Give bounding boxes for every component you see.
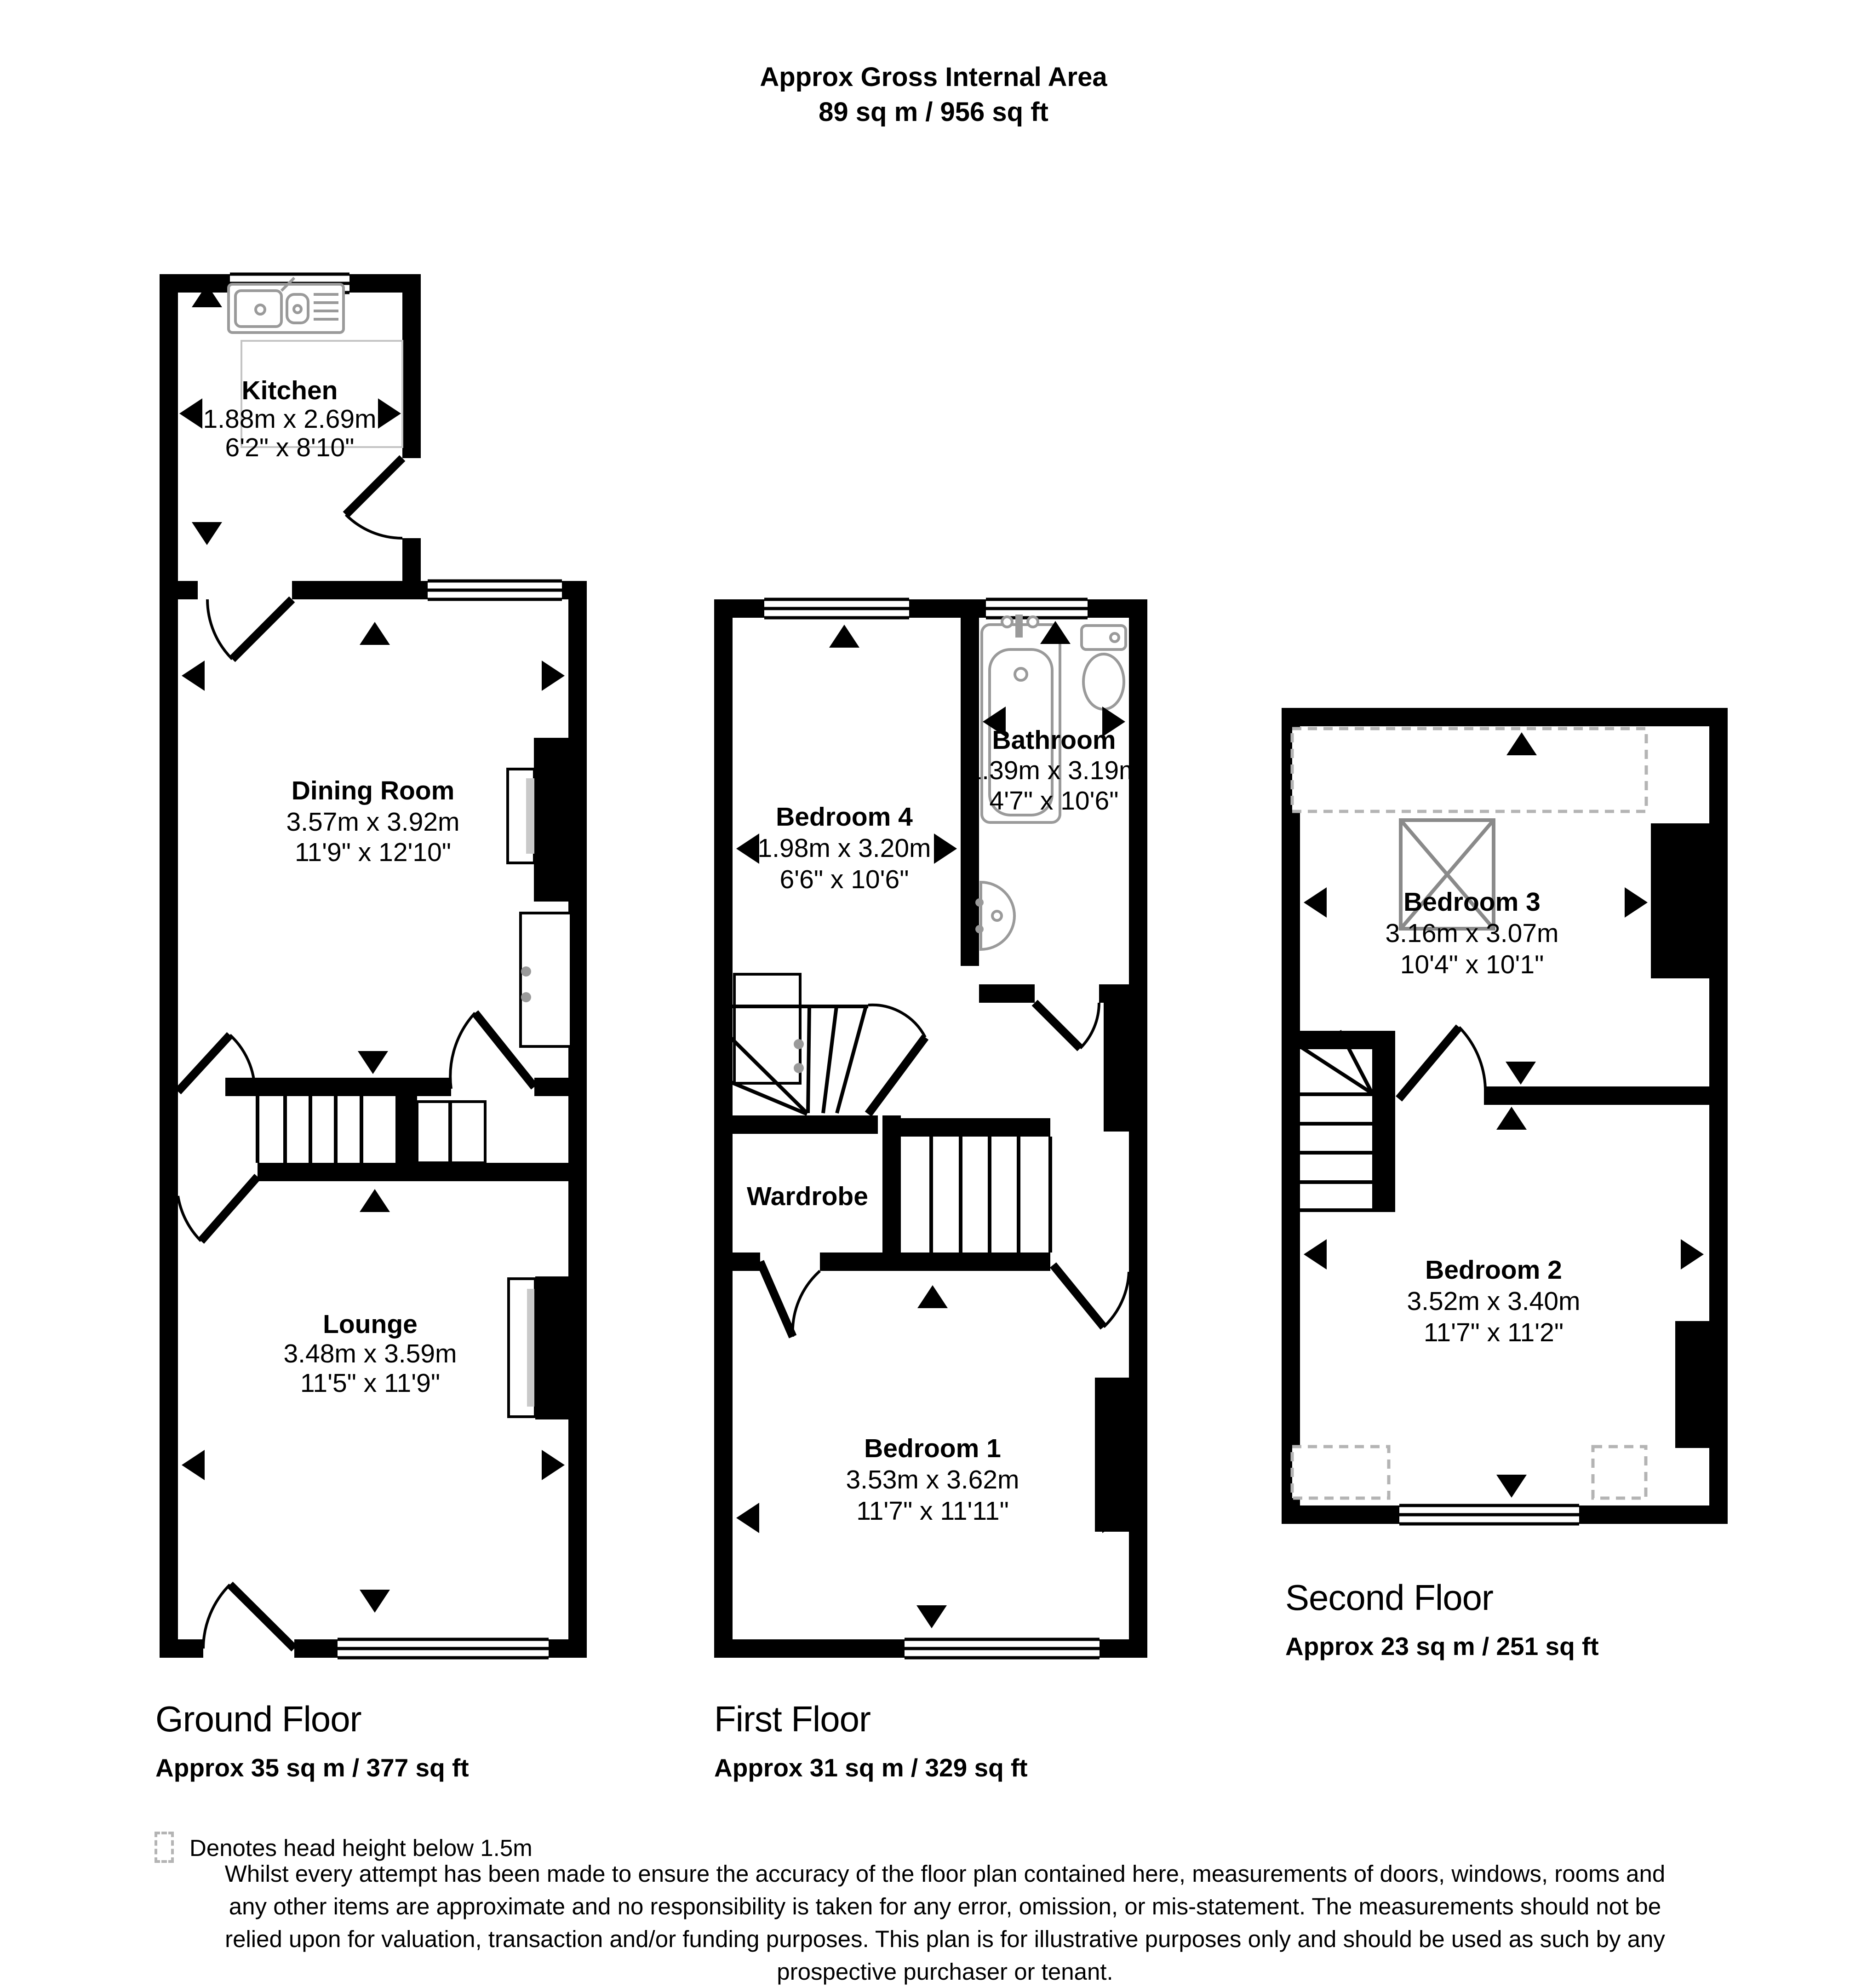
bedroom1-window bbox=[905, 1633, 1100, 1664]
bedroom2-window bbox=[1399, 1499, 1579, 1530]
bedroom4-arrow-right-icon bbox=[934, 833, 957, 864]
title-line1: Approx Gross Internal Area bbox=[0, 60, 1867, 95]
dining-arrow-down-icon bbox=[358, 1051, 388, 1074]
dining-chimney-breast bbox=[534, 738, 568, 902]
dining-name: Dining Room bbox=[292, 776, 455, 805]
lounge-arrow-right-icon bbox=[542, 1450, 565, 1480]
second-floor-name: Second Floor bbox=[1285, 1577, 1599, 1619]
head-height-zones bbox=[1292, 729, 1646, 1498]
bedroom2-arrow-left-icon bbox=[1304, 1239, 1327, 1270]
wardrobe-doors bbox=[760, 1262, 820, 1337]
bedroom1-door bbox=[1053, 1265, 1129, 1327]
disclaimer-line1: Whilst every attempt has been made to en… bbox=[23, 1857, 1867, 1890]
bedroom2-metric: 3.52m x 3.40m bbox=[1407, 1287, 1580, 1316]
ground-floor-plan: Kitchen 1.88m x 2.69m 6'2" x 8'10" Dinin… bbox=[138, 253, 625, 1702]
lounge-window bbox=[338, 1633, 549, 1664]
disclaimer-line2: any other items are approximate and no r… bbox=[23, 1890, 1867, 1923]
kitchen-label: Kitchen 1.88m x 2.69m 6'2" x 8'10" bbox=[203, 376, 376, 462]
bedroom4-arrow-left-icon bbox=[736, 833, 759, 864]
lounge-imperial: 11'5" x 11'9" bbox=[300, 1368, 440, 1398]
bedroom4-name: Bedroom 4 bbox=[776, 802, 913, 832]
bedroom4-metric: 1.98m x 3.20m bbox=[757, 833, 931, 863]
lounge-metric: 3.48m x 3.59m bbox=[283, 1339, 457, 1368]
front-door bbox=[203, 1585, 294, 1649]
lounge-label: Lounge 3.48m x 3.59m 11'5" x 11'9" bbox=[283, 1310, 457, 1398]
bedroom1-imperial: 11'7" x 11'11" bbox=[856, 1496, 1009, 1526]
toilet-icon bbox=[1082, 626, 1126, 709]
dining-window bbox=[428, 575, 562, 606]
second-floor-plan: Bedroom 3 3.16m x 3.07m 10'4" x 10'1" Be… bbox=[1260, 681, 1757, 1555]
kitchen-arrow-down-icon bbox=[192, 522, 222, 545]
head-height-zone-bottom-right bbox=[1593, 1447, 1646, 1498]
basin-icon bbox=[975, 882, 1014, 949]
dining-room-label: Dining Room 3.57m x 3.92m 11'9" x 12'10" bbox=[286, 776, 459, 867]
second-floor-label: Second Floor Approx 23 sq m / 251 sq ft bbox=[1285, 1577, 1599, 1661]
bedroom3-arrow-down-icon bbox=[1506, 1062, 1536, 1085]
bedroom4-arrow-up-icon bbox=[829, 625, 859, 648]
bedroom1-arrow-left-icon bbox=[736, 1503, 759, 1533]
kitchen-dining-door bbox=[207, 599, 292, 659]
dining-fireplace-icon bbox=[508, 769, 534, 863]
dining-imperial: 11'9" x 12'10" bbox=[295, 838, 451, 867]
second-landing-door bbox=[1399, 1027, 1485, 1099]
ground-floor-area: Approx 35 sq m / 377 sq ft bbox=[155, 1753, 469, 1782]
bedroom3-name: Bedroom 3 bbox=[1403, 887, 1541, 917]
bedroom2-label: Bedroom 2 3.52m x 3.40m 11'7" x 11'2" bbox=[1407, 1255, 1580, 1347]
bedroom1-arrow-down-icon bbox=[916, 1605, 947, 1628]
head-height-zone-bottom-left bbox=[1292, 1447, 1389, 1498]
first-floor-area: Approx 31 sq m / 329 sq ft bbox=[714, 1753, 1028, 1782]
bedroom3-arrow-left-icon bbox=[1304, 887, 1327, 918]
dining-arrow-right-icon bbox=[542, 661, 565, 691]
bedroom1-name: Bedroom 1 bbox=[864, 1434, 1001, 1463]
bathroom-label: Bathroom 1.39m x 3.19m 4'7" x 10'6" bbox=[967, 725, 1140, 816]
second-floor-walls bbox=[1282, 708, 1728, 1524]
kitchen-metric: 1.88m x 2.69m bbox=[203, 404, 376, 434]
bedroom4-imperial: 6'6" x 10'6" bbox=[780, 865, 909, 894]
bathroom-door bbox=[1035, 1003, 1099, 1048]
bedroom2-name: Bedroom 2 bbox=[1425, 1255, 1562, 1285]
wardrobe-label: Wardrobe bbox=[747, 1182, 868, 1211]
bathroom-name: Bathroom bbox=[992, 725, 1116, 755]
kitchen-name: Kitchen bbox=[241, 376, 338, 405]
first-floor-plan: Bedroom 4 1.98m x 3.20m 6'6" x 10'6" Bat… bbox=[690, 575, 1177, 1679]
second-floor-area: Approx 23 sq m / 251 sq ft bbox=[1285, 1632, 1599, 1661]
lounge-arrow-down-icon bbox=[360, 1590, 390, 1613]
disclaimer: Whilst every attempt has been made to en… bbox=[23, 1857, 1867, 1988]
bedroom2-arrow-right-icon bbox=[1681, 1239, 1704, 1270]
bathroom-metric: 1.39m x 3.19m bbox=[967, 756, 1140, 785]
bedroom2-arrow-up-icon bbox=[1496, 1107, 1527, 1130]
first-floor-name: First Floor bbox=[714, 1698, 1028, 1740]
head-height-zone-top bbox=[1292, 729, 1646, 811]
bedroom1-metric: 3.53m x 3.62m bbox=[846, 1465, 1019, 1494]
kitchen-sink-icon bbox=[229, 278, 344, 333]
kitchen-arrow-left-icon bbox=[179, 398, 202, 429]
dining-cupboard-icon bbox=[521, 913, 571, 1046]
ground-floor-label: Ground Floor Approx 35 sq m / 377 sq ft bbox=[155, 1698, 469, 1782]
ground-floor-name: Ground Floor bbox=[155, 1698, 469, 1740]
disclaimer-line3: relied upon for valuation, transaction a… bbox=[23, 1923, 1867, 1955]
title-line2: 89 sq m / 956 sq ft bbox=[0, 95, 1867, 130]
bedroom1-arrow-up-icon bbox=[917, 1285, 948, 1308]
disclaimer-line4: prospective purchaser or tenant. bbox=[23, 1955, 1867, 1988]
second-floor-stairs bbox=[1300, 1031, 1372, 1210]
dining-arrow-up-icon bbox=[360, 622, 390, 645]
bedroom4-label: Bedroom 4 1.98m x 3.20m 6'6" x 10'6" bbox=[757, 802, 931, 894]
lounge-arrow-up-icon bbox=[360, 1189, 390, 1212]
bedroom4-window bbox=[764, 593, 909, 624]
kitchen-arrow-right-icon bbox=[378, 398, 401, 429]
bedroom2-arrow-down-icon bbox=[1496, 1475, 1527, 1498]
bedroom1-label: Bedroom 1 3.53m x 3.62m 11'7" x 11'11" bbox=[846, 1434, 1019, 1526]
lounge-chimney-breast bbox=[535, 1276, 568, 1419]
first-floor-label: First Floor Approx 31 sq m / 329 sq ft bbox=[714, 1698, 1028, 1782]
page-title: Approx Gross Internal Area 89 sq m / 956… bbox=[0, 60, 1867, 130]
lounge-name: Lounge bbox=[323, 1310, 418, 1339]
dining-metric: 3.57m x 3.92m bbox=[286, 807, 459, 837]
bathroom-imperial: 4'7" x 10'6" bbox=[990, 786, 1119, 816]
bedroom3-arrow-right-icon bbox=[1625, 887, 1648, 918]
kitchen-rear-door bbox=[346, 458, 402, 538]
dining-arrow-left-icon bbox=[182, 661, 205, 691]
second-dimension-arrows bbox=[1304, 732, 1704, 1498]
bedroom3-metric: 3.16m x 3.07m bbox=[1385, 919, 1558, 948]
ground-stairs bbox=[258, 1096, 485, 1163]
bedroom2-imperial: 11'7" x 11'2" bbox=[1424, 1318, 1563, 1347]
kitchen-imperial: 6'2" x 8'10" bbox=[225, 433, 355, 462]
lounge-arrow-left-icon bbox=[182, 1450, 205, 1480]
hall-lounge-door bbox=[178, 1177, 258, 1241]
lounge-fireplace-icon bbox=[509, 1279, 535, 1417]
bedroom3-label: Bedroom 3 3.16m x 3.07m 10'4" x 10'1" bbox=[1385, 887, 1558, 979]
bedroom3-imperial: 10'4" x 10'1" bbox=[1400, 950, 1544, 979]
bedroom4-cupboard-icon bbox=[734, 974, 804, 1083]
